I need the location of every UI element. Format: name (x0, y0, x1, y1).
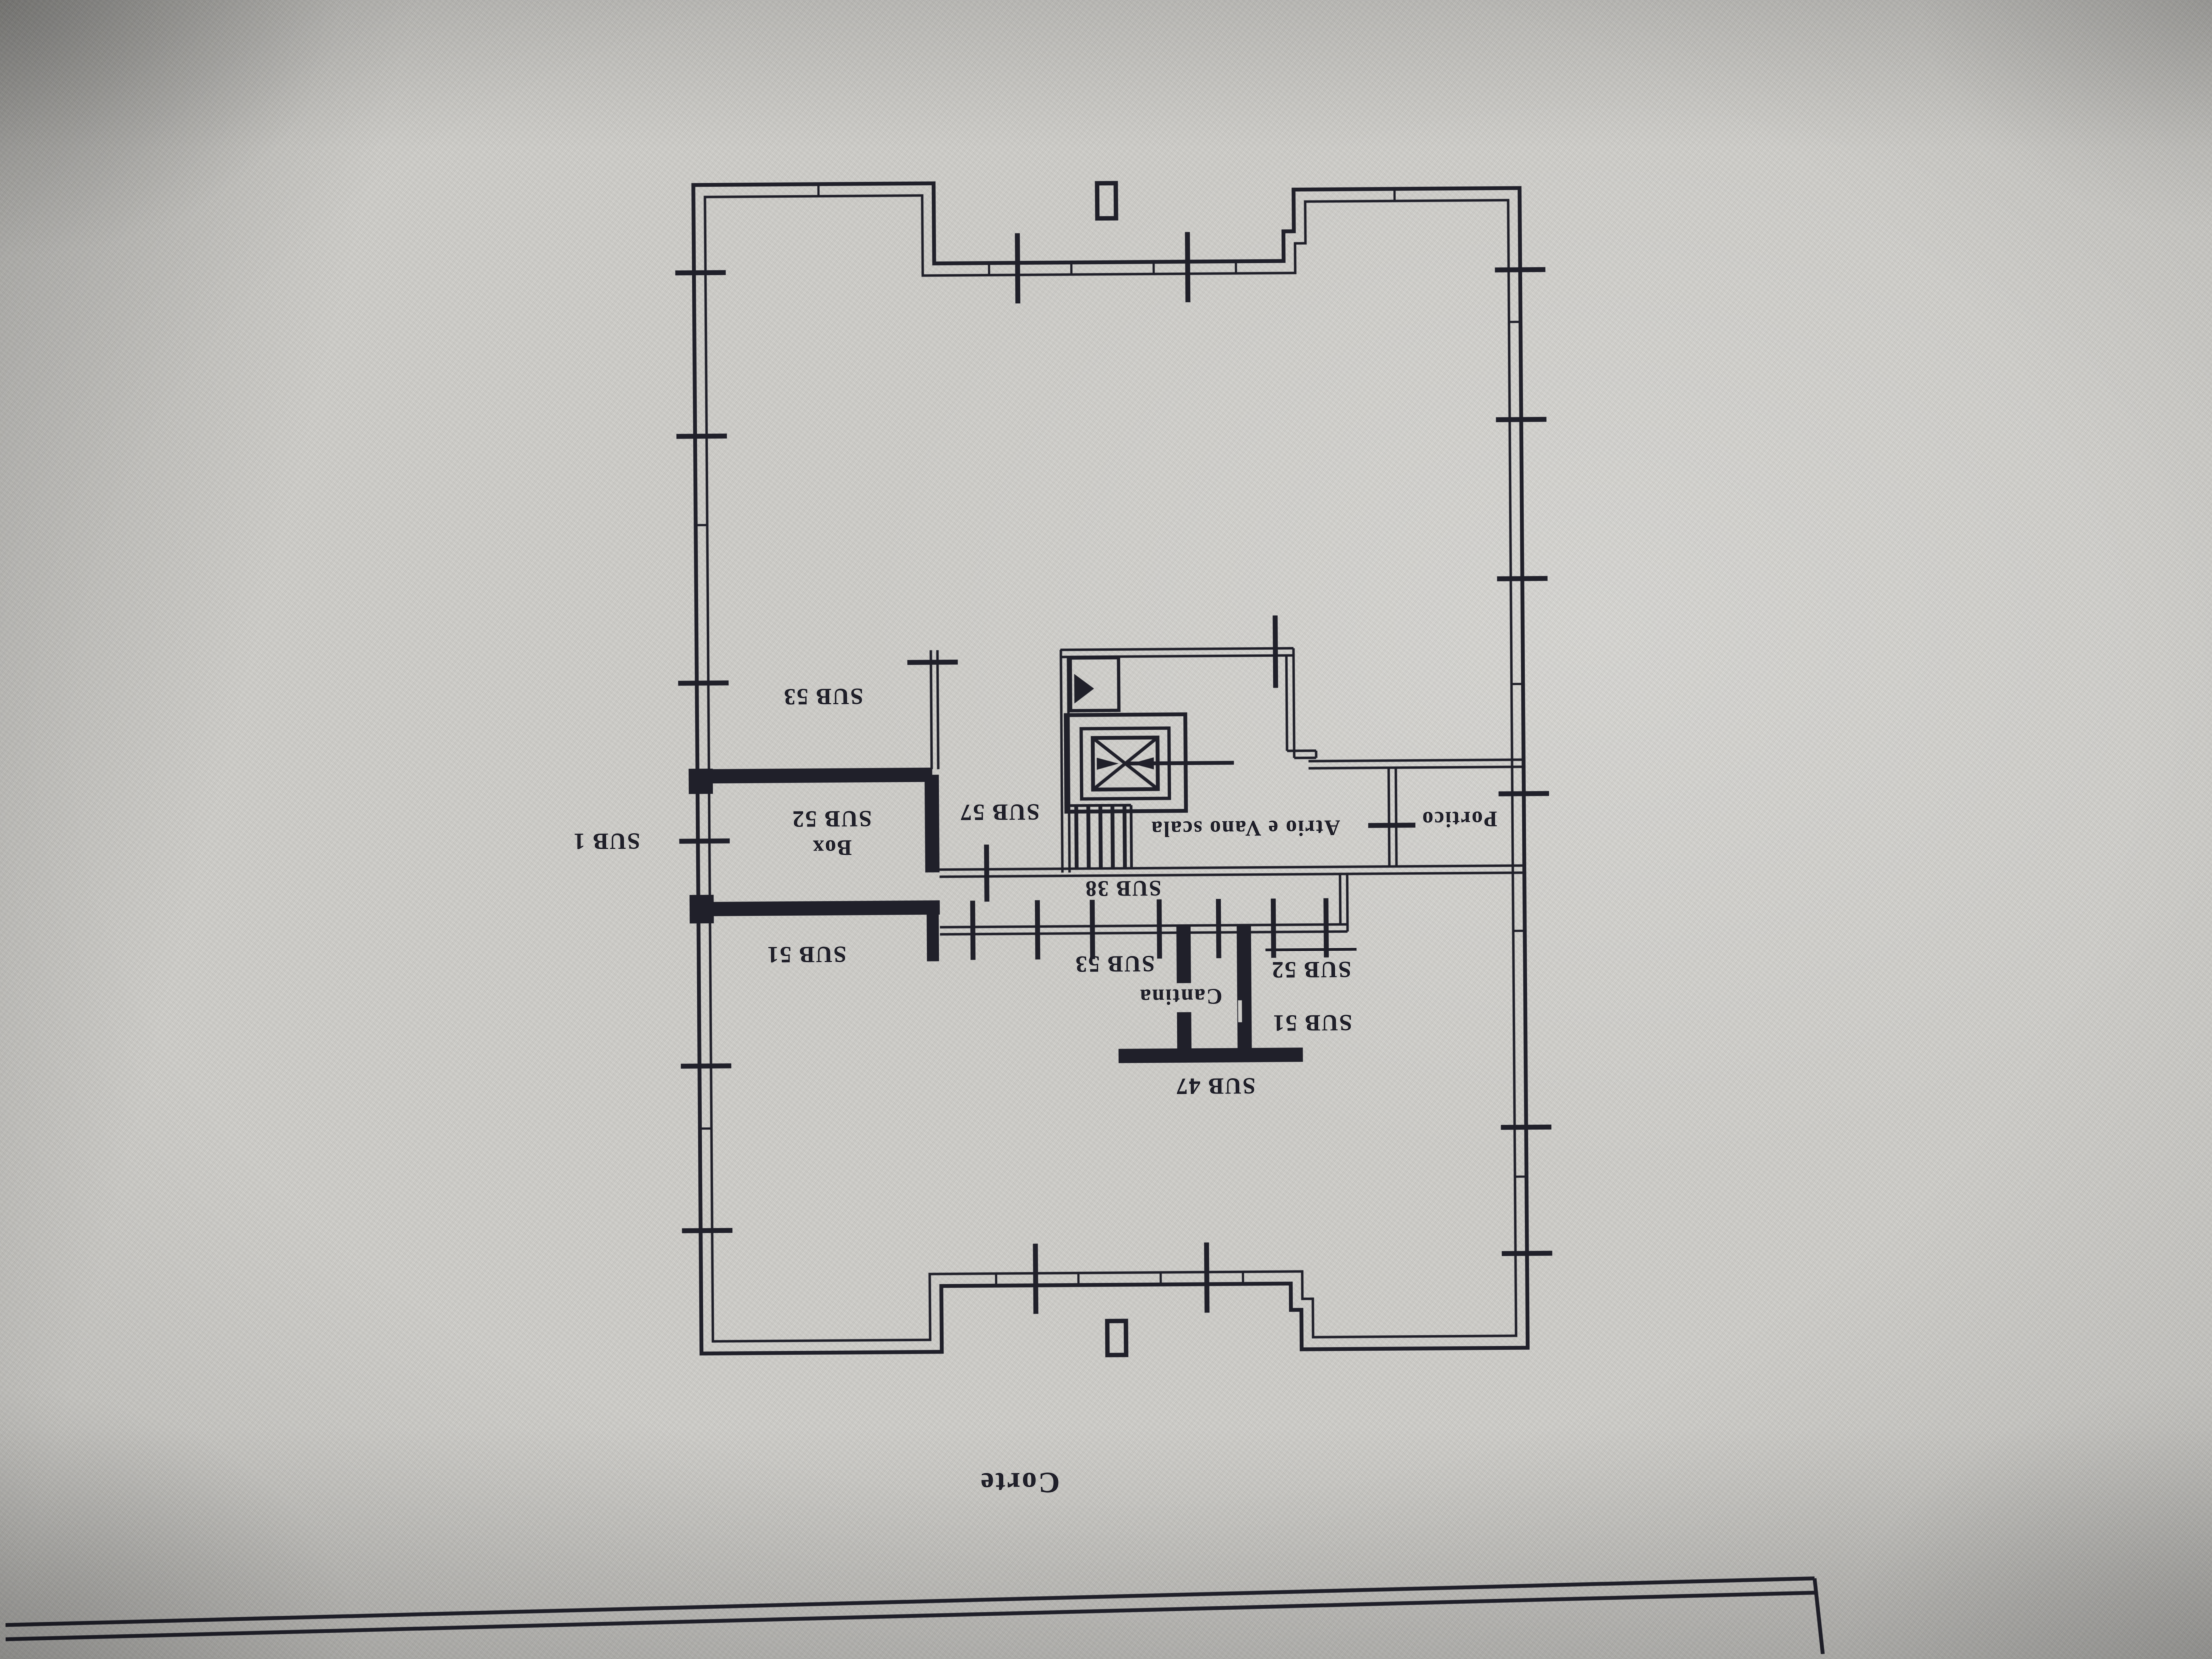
room-label-box: Box (812, 835, 852, 861)
duct-symbol (1070, 658, 1119, 711)
elevator-symbol (1066, 714, 1234, 811)
area-label-sub-1: SUB 1 (572, 827, 640, 854)
wall-cap (689, 769, 713, 794)
room-label-sub-53-center: SUB 53 (1074, 950, 1155, 977)
floor-plan-photo: SUB 53 SUB 1 SUB 52 Box SUB 51 SUB 57 At… (0, 0, 2212, 1659)
room-label-atrio-vano-scala: Atrio e Vano scala (1150, 815, 1340, 842)
room-label-sub-51-center: SUB 51 (1272, 1009, 1352, 1036)
room-label-sub-52-box: SUB 52 (792, 805, 872, 832)
room-label-sub-57: SUB 57 (960, 798, 1040, 825)
floorplan-linework (0, 0, 2212, 1659)
column-pillar-top (1097, 183, 1116, 218)
stairs-symbol (1069, 805, 1132, 869)
corridor-walls (940, 866, 1525, 934)
floor-plan-sheet: SUB 53 SUB 1 SUB 52 Box SUB 51 SUB 57 At… (0, 0, 2212, 1659)
adjacent-sheet-frame (5, 1578, 1823, 1659)
wall-cap (690, 895, 714, 923)
room-label-portico: Portico (1421, 806, 1498, 833)
area-label-corte: Corte (979, 1466, 1060, 1500)
room-label-cantina: Cantina (1139, 984, 1222, 1010)
room-label-sub-47: SUB 47 (1175, 1072, 1256, 1099)
room-label-sub-52-center: SUB 52 (1265, 948, 1357, 983)
box-room-walls (692, 775, 940, 963)
outer-walls (693, 179, 1528, 1353)
column-pillar-bottom (1107, 1321, 1126, 1355)
room-label-sub-51-left: SUB 51 (766, 940, 847, 967)
room-label-sub-53-top: SUB 53 (783, 682, 864, 709)
room-label-sub-38: SUB 38 (1085, 876, 1161, 902)
